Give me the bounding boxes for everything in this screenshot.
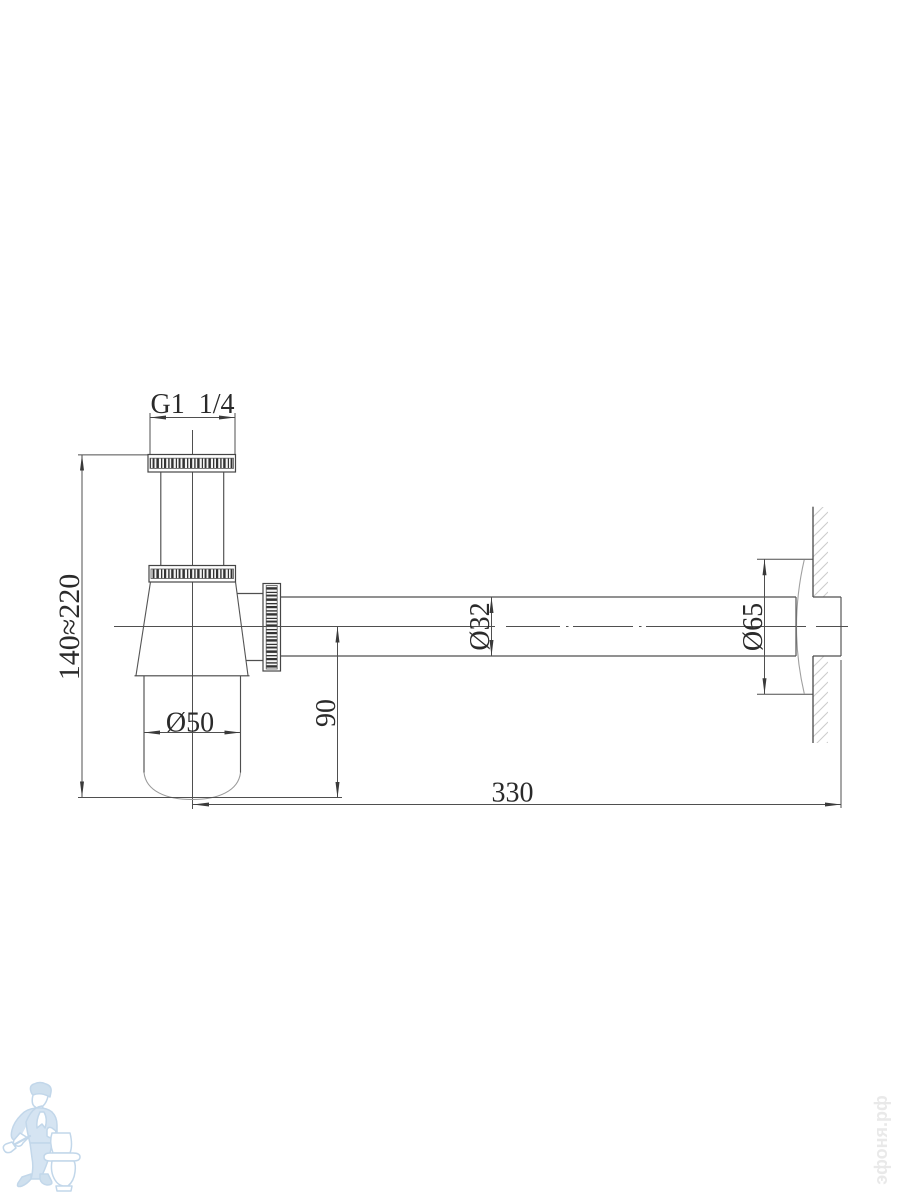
svg-text:90: 90 xyxy=(311,699,342,727)
svg-text:Ø32: Ø32 xyxy=(465,602,496,650)
svg-text:140≈220: 140≈220 xyxy=(53,574,86,680)
svg-text:Ø50: Ø50 xyxy=(166,708,214,739)
svg-text:Ø65: Ø65 xyxy=(738,603,769,651)
svg-text:G1 1/4: G1 1/4 xyxy=(151,389,235,420)
svg-text:330: 330 xyxy=(492,778,534,809)
svg-text:эфоня.рф: эфоня.рф xyxy=(871,1095,891,1185)
